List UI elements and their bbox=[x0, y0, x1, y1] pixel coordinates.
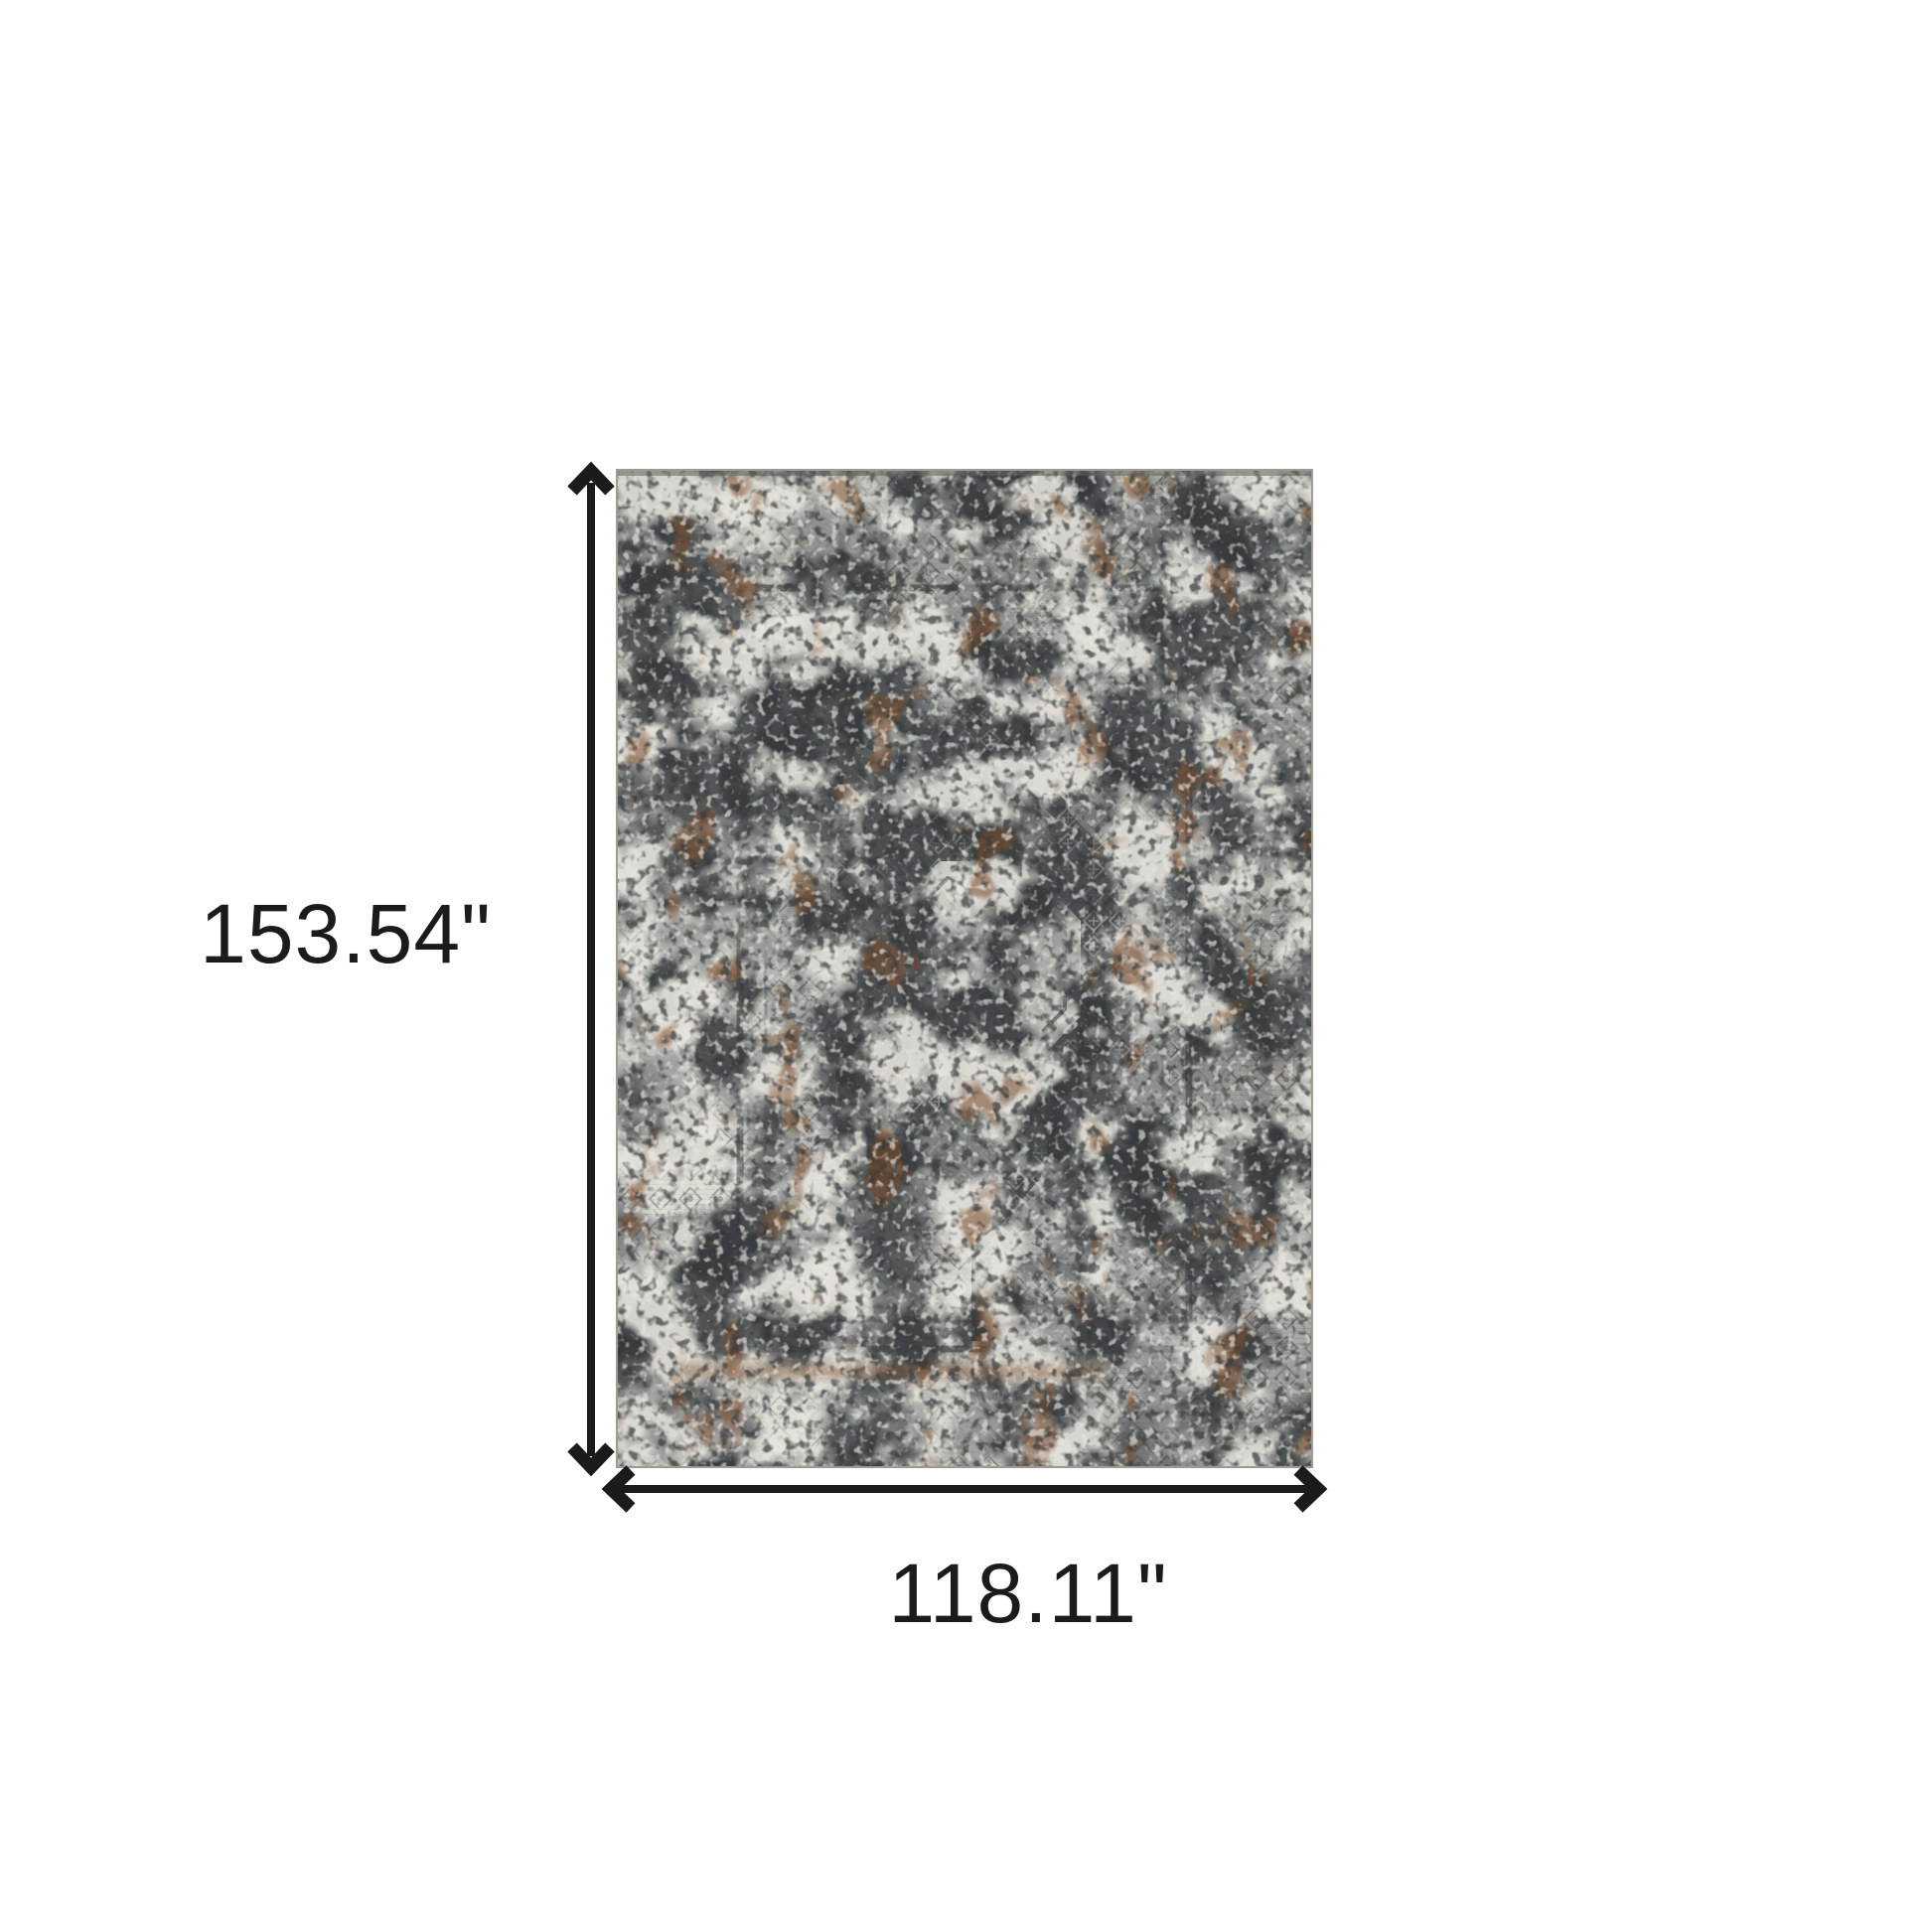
arrow-right-icon bbox=[1298, 1470, 1318, 1508]
arrow-down-icon bbox=[572, 1447, 610, 1467]
width-dimension-label: 118.11" bbox=[829, 1552, 1227, 1635]
width-arrow bbox=[611, 1470, 1318, 1508]
dimension-diagram-canvas: 153.54" 118.11" bbox=[0, 0, 1932, 1932]
arrow-up-icon bbox=[572, 471, 610, 491]
rug-product-image bbox=[616, 469, 1313, 1468]
rug-texture bbox=[616, 469, 1313, 1468]
height-dimension-label: 153.54" bbox=[147, 892, 544, 975]
arrow-left-icon bbox=[611, 1470, 631, 1508]
height-arrow bbox=[572, 471, 610, 1467]
